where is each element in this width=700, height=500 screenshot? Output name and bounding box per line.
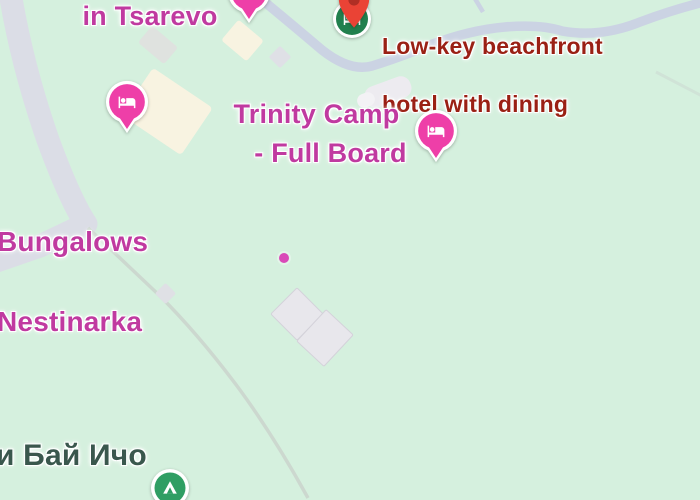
label-locality-bay-icho[interactable]: и Бай Ичо bbox=[0, 439, 147, 473]
map-canvas[interactable]: in Tsarevo Low-key beachfront hotel with… bbox=[0, 0, 700, 500]
red-location-pin-icon[interactable] bbox=[328, 0, 380, 32]
label-town[interactable]: in Tsarevo bbox=[55, 1, 245, 32]
trail-path-right bbox=[656, 72, 700, 97]
poi-dot[interactable] bbox=[279, 253, 289, 263]
label-trinity-camp-line2[interactable]: - Full Board bbox=[228, 138, 433, 169]
label-hotel-description-line1: Low-key beachfront bbox=[382, 32, 603, 61]
lodging-pin-left[interactable] bbox=[105, 80, 149, 134]
label-bungalows-nestinarka[interactable]: Bungalows Nestinarka bbox=[0, 182, 148, 382]
label-trinity-camp-line1[interactable]: Trinity Camp bbox=[214, 99, 419, 130]
lodging-pin-top[interactable] bbox=[227, 0, 271, 24]
label-bungalows-line2: Nestinarka bbox=[0, 302, 148, 342]
campground-marker[interactable] bbox=[150, 468, 190, 500]
lodging-pin-trinity[interactable] bbox=[414, 109, 458, 163]
label-bungalows-line1: Bungalows bbox=[0, 222, 148, 262]
